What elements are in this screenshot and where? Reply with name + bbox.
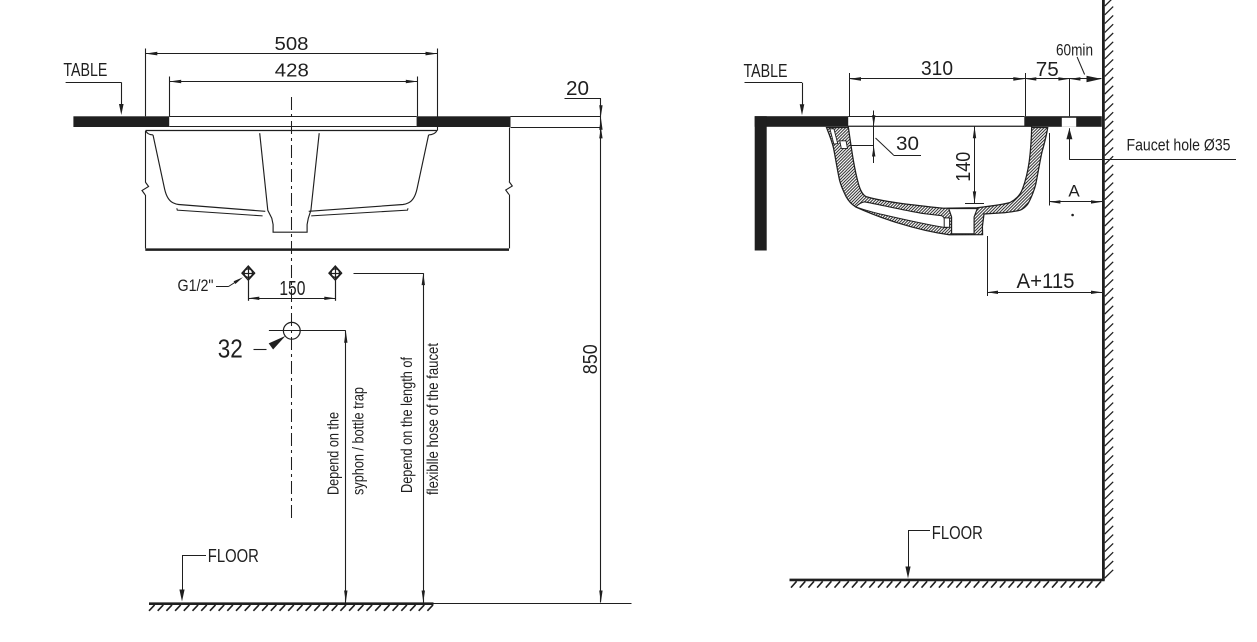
svg-text:A: A xyxy=(1068,182,1080,201)
svg-text:FLOOR: FLOOR xyxy=(932,522,983,543)
svg-text:75: 75 xyxy=(1036,59,1059,81)
svg-text:850: 850 xyxy=(580,344,602,374)
svg-text:428: 428 xyxy=(275,60,309,81)
svg-text:A+115: A+115 xyxy=(1017,270,1075,293)
svg-text:Faucet hole Ø35: Faucet hole Ø35 xyxy=(1127,136,1231,155)
svg-text:FLOOR: FLOOR xyxy=(208,545,259,566)
svg-text:60min: 60min xyxy=(1056,42,1093,60)
svg-text:TABLE: TABLE xyxy=(63,59,107,80)
svg-text:flexiblle hose of the faucet: flexiblle hose of the faucet xyxy=(425,343,442,495)
svg-text:150: 150 xyxy=(279,278,305,300)
svg-text:Depend on the: Depend on the xyxy=(326,412,343,495)
svg-text:20: 20 xyxy=(566,78,589,100)
svg-text:30: 30 xyxy=(896,133,919,155)
svg-text:Depend on the length of: Depend on the length of xyxy=(399,357,416,493)
svg-text:32: 32 xyxy=(218,334,243,364)
svg-text:140: 140 xyxy=(953,152,975,182)
svg-text:310: 310 xyxy=(921,58,953,80)
svg-text:G1/2": G1/2" xyxy=(178,277,214,295)
svg-text:TABLE: TABLE xyxy=(744,60,788,81)
svg-text:syphon / bottle trap: syphon / bottle trap xyxy=(351,387,368,495)
svg-text:508: 508 xyxy=(275,33,309,54)
